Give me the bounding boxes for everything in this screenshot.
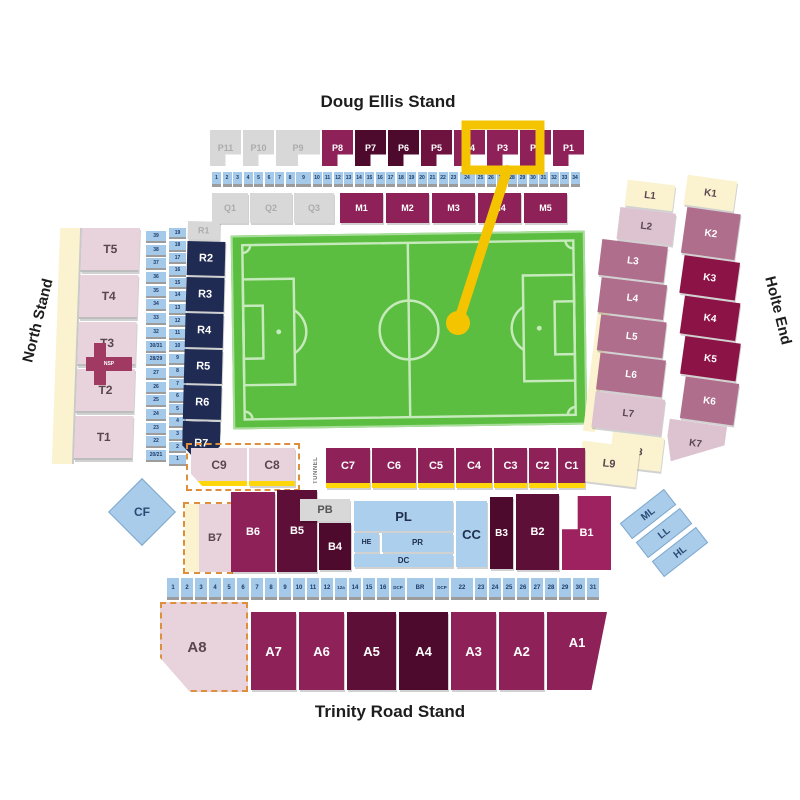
seat-section[interactable]: P4 <box>454 130 485 166</box>
seat-section[interactable]: K1 <box>684 175 738 212</box>
row-number-block[interactable]: 30 <box>529 172 538 187</box>
seat-section[interactable]: K3 <box>679 255 740 300</box>
seat-section[interactable]: A7 <box>251 612 296 690</box>
row-number-block[interactable]: 33 <box>560 172 569 187</box>
row-number-block[interactable]: 16 <box>169 266 186 277</box>
row-number-block[interactable]: 1 <box>167 578 179 600</box>
row-number-block[interactable]: 20 <box>418 172 427 187</box>
seat-section[interactable]: K6 <box>680 376 739 425</box>
row-number-block[interactable]: 12 <box>169 316 186 327</box>
seat-section[interactable]: P6 <box>388 130 419 166</box>
row-number-block[interactable]: 11 <box>169 329 186 340</box>
row-number-block[interactable]: 14 <box>349 578 361 600</box>
seat-section[interactable]: C1 <box>558 448 585 488</box>
row-number-block[interactable]: 4 <box>209 578 221 600</box>
stadium-seat-map: Doug Ellis Stand P11P10P9P8P7P6P5P4P3P2P… <box>0 0 800 800</box>
row-number-block[interactable]: 30/31 <box>146 341 166 353</box>
c8-c9-hospitality-group: C9C8 <box>186 443 300 491</box>
trinity-road-stand-title: Trinity Road Stand <box>295 702 485 722</box>
row-number-block[interactable]: 24 <box>460 172 475 187</box>
row-number-block[interactable]: 27 <box>146 368 166 380</box>
row-number-block[interactable]: 34 <box>146 299 166 311</box>
row-number-block[interactable]: 32 <box>550 172 559 187</box>
seat-section[interactable]: A5 <box>347 612 396 690</box>
seat-section-he[interactable]: HE <box>354 533 379 552</box>
row-number-block[interactable]: 5 <box>254 172 263 187</box>
seat-section[interactable]: C8 <box>249 448 295 486</box>
row-number-block[interactable]: 5 <box>223 578 235 600</box>
row-number-block[interactable]: 15 <box>365 172 374 187</box>
seat-section[interactable]: T4 <box>79 275 139 319</box>
seat-section[interactable]: C2 <box>529 448 556 488</box>
football-pitch <box>231 231 588 430</box>
row-number-block[interactable]: DCP <box>435 578 449 600</box>
seat-section[interactable]: P11 <box>210 130 241 166</box>
row-number-block[interactable]: 15 <box>363 578 375 600</box>
seat-section[interactable]: T5 <box>81 228 141 272</box>
seat-section[interactable]: P10 <box>243 130 274 166</box>
row-number-block[interactable]: 39 <box>146 231 166 243</box>
row-number-block[interactable]: 17 <box>169 253 186 264</box>
row-number-block[interactable]: 23 <box>449 172 458 187</box>
row-number-block[interactable]: 32 <box>146 327 166 339</box>
seat-section[interactable]: P3 <box>487 130 518 166</box>
seat-section[interactable]: K4 <box>680 296 741 341</box>
seat-section-pb[interactable]: PB <box>300 499 350 521</box>
r-sections-column: R1R2R3R4R5R6R7 <box>182 221 226 466</box>
row-number-block[interactable]: 34 <box>571 172 580 187</box>
row-number-block[interactable]: 9 <box>279 578 291 600</box>
seat-section[interactable]: P2 <box>520 130 551 166</box>
c-sections-row: C7C6C5C4C3C2C1 <box>326 448 585 488</box>
row-number-block[interactable]: 8 <box>265 578 277 600</box>
seat-section[interactable]: C5 <box>418 448 454 488</box>
row-number-block[interactable]: 37 <box>146 258 166 270</box>
row-number-block[interactable]: 10 <box>293 578 305 600</box>
m-sections-row: M1M2M3M4M5 <box>340 193 567 223</box>
seat-section[interactable]: A1 <box>547 612 607 690</box>
seat-section-b1[interactable]: B1 <box>562 496 611 570</box>
seat-section-a8[interactable]: A8 <box>160 602 248 692</box>
seat-section[interactable]: M1 <box>340 193 383 223</box>
row-number-block[interactable]: 26 <box>517 578 529 600</box>
seat-section-pl[interactable]: PL <box>354 501 453 531</box>
seat-section[interactable]: Q3 <box>294 193 334 223</box>
seat-section[interactable]: A2 <box>499 612 544 690</box>
row-number-block[interactable]: 36 <box>146 272 166 284</box>
q-sections-row: Q1Q2Q3 <box>212 193 334 223</box>
row-number-block[interactable]: 14 <box>355 172 364 187</box>
seat-section[interactable]: R6 <box>183 385 222 420</box>
doug-ellis-stand-title: Doug Ellis Stand <box>268 92 508 112</box>
row-number-block[interactable]: 28 <box>508 172 517 187</box>
row-number-block[interactable]: 13 <box>169 304 186 315</box>
seat-section-dc[interactable]: DC <box>354 554 453 567</box>
seat-section[interactable]: P8 <box>322 130 353 166</box>
row-number-block[interactable]: 10 <box>169 341 186 352</box>
nsp-section[interactable]: NSP <box>86 343 132 385</box>
north-row-numbers-outer: 393837363534333230/3128/2927262524232220… <box>146 231 166 462</box>
row-number-block[interactable]: 3 <box>233 172 242 187</box>
row-number-block[interactable]: 29 <box>518 172 527 187</box>
row-number-block[interactable]: 10 <box>313 172 322 187</box>
row-number-block[interactable]: 6 <box>265 172 274 187</box>
seat-section[interactable]: M4 <box>478 193 521 223</box>
a-sections-row: A7A6A5A4A3A2A1 <box>251 612 607 690</box>
row-number-block[interactable]: 24 <box>489 578 501 600</box>
suite-sections: MLLLHL <box>618 498 748 588</box>
row-number-block[interactable]: 12 <box>321 578 333 600</box>
seat-section[interactable]: A6 <box>299 612 344 690</box>
cf-label: CF <box>134 505 150 519</box>
row-number-block[interactable]: 28 <box>545 578 557 600</box>
row-number-block[interactable]: 22 <box>451 578 473 600</box>
row-number-block[interactable]: 27 <box>531 578 543 600</box>
seat-section[interactable]: C7 <box>326 448 370 488</box>
seat-section[interactable]: C3 <box>494 448 527 488</box>
nsp-label: NSP <box>86 357 132 371</box>
row-number-block[interactable]: 6 <box>237 578 249 600</box>
row-number-block[interactable]: BR <box>407 578 433 600</box>
row-number-block[interactable]: 25 <box>146 395 166 407</box>
seat-section[interactable]: C4 <box>456 448 492 488</box>
seat-section-cf[interactable]: CF <box>108 478 176 546</box>
seat-section[interactable]: P7 <box>355 130 386 166</box>
tunnel-label: TUNNEL <box>313 447 325 493</box>
row-number-block[interactable]: 11 <box>323 172 332 187</box>
row-number-block[interactable]: 7 <box>251 578 263 600</box>
row-number-block[interactable]: 18 <box>397 172 406 187</box>
row-number-block[interactable]: 12a <box>335 578 347 600</box>
seat-section[interactable]: C9 <box>191 448 247 486</box>
row-number-block[interactable]: 35 <box>146 286 166 298</box>
row-number-block[interactable]: 23 <box>146 423 166 435</box>
seat-section-cc[interactable]: CC <box>456 501 487 567</box>
row-number-block[interactable]: 8 <box>286 172 295 187</box>
row-number-block[interactable]: 33 <box>146 313 166 325</box>
row-number-block[interactable]: 7 <box>275 172 284 187</box>
row-number-block[interactable]: 24 <box>146 409 166 421</box>
row-number-block[interactable]: 20/21 <box>146 450 166 462</box>
row-number-block[interactable]: 3 <box>195 578 207 600</box>
seat-section[interactable]: T1 <box>74 416 134 460</box>
seat-section[interactable]: K7 <box>664 419 727 469</box>
row-number-block[interactable]: 16 <box>377 578 389 600</box>
row-number-block[interactable]: 14 <box>169 291 186 302</box>
row-number-block[interactable]: 30 <box>573 578 585 600</box>
row-number-block[interactable]: 25 <box>476 172 485 187</box>
seat-section[interactable]: Q1 <box>212 193 248 223</box>
row-number-block[interactable]: 38 <box>146 245 166 257</box>
seat-section[interactable]: M5 <box>524 193 567 223</box>
row-number-block[interactable]: 1 <box>212 172 221 187</box>
row-number-block[interactable]: DCP <box>391 578 405 600</box>
seat-section[interactable]: Q2 <box>250 193 292 223</box>
seat-section[interactable]: P9 <box>276 130 320 166</box>
row-number-block[interactable]: 2 <box>181 578 193 600</box>
seat-section-b2[interactable]: B2 <box>516 494 559 570</box>
pitch-markings <box>233 233 586 428</box>
b7-label: B7 <box>199 504 231 572</box>
seat-section-b7[interactable]: B7 <box>183 502 233 574</box>
row-number-block[interactable]: 19 <box>169 228 186 239</box>
row-number-block[interactable]: 22 <box>146 436 166 448</box>
seat-section[interactable]: K5 <box>680 336 741 381</box>
row-number-block[interactable]: 26 <box>487 172 496 187</box>
row-number-block[interactable]: 28/29 <box>146 354 166 366</box>
b7-concourse-strip <box>185 504 199 572</box>
row-number-block[interactable]: 2 <box>223 172 232 187</box>
seat-section[interactable]: R1 <box>188 221 220 240</box>
row-number-block[interactable]: 19 <box>407 172 416 187</box>
seat-section-b4[interactable]: B4 <box>319 523 351 570</box>
row-number-block[interactable]: 26 <box>146 382 166 394</box>
seat-section[interactable]: A3 <box>451 612 496 690</box>
seat-section[interactable]: K2 <box>681 207 741 260</box>
seat-section[interactable]: C6 <box>372 448 416 488</box>
row-number-block[interactable]: 15 <box>169 278 186 289</box>
row-number-block[interactable]: 4 <box>244 172 253 187</box>
trinity-row-numbers: 12345678910111212a141516DCPBRDCP22232425… <box>167 578 599 600</box>
holte-end-title: Holte End <box>754 244 800 376</box>
seat-section-pr[interactable]: PR <box>382 533 453 552</box>
row-number-block[interactable]: 21 <box>428 172 437 187</box>
row-number-block[interactable]: 25 <box>503 578 515 600</box>
row-number-block[interactable]: 16 <box>376 172 385 187</box>
seat-section[interactable]: M3 <box>432 193 475 223</box>
row-number-block[interactable]: 9 <box>296 172 311 187</box>
seat-section[interactable]: M2 <box>386 193 429 223</box>
seat-section[interactable]: P5 <box>421 130 452 166</box>
row-number-block[interactable]: 29 <box>559 578 571 600</box>
seat-section[interactable]: R3 <box>186 277 225 312</box>
row-number-block[interactable]: 27 <box>497 172 506 187</box>
row-number-block[interactable]: 18 <box>169 241 186 252</box>
seat-section[interactable]: R4 <box>185 313 224 348</box>
seat-section[interactable]: R5 <box>184 349 223 384</box>
row-number-block[interactable]: 31 <box>539 172 548 187</box>
row-number-block[interactable]: 23 <box>475 578 487 600</box>
p-sections-row: P11P10P9P8P7P6P5P4P3P2P1 <box>210 130 584 166</box>
row-number-block[interactable]: 12 <box>334 172 343 187</box>
seat-section-b6[interactable]: B6 <box>231 492 275 572</box>
seat-section-b3[interactable]: B3 <box>490 497 513 569</box>
row-number-block[interactable]: 13 <box>344 172 353 187</box>
doug-ellis-row-numbers: 1234567891011121314151617181920212223242… <box>212 172 580 187</box>
row-number-block[interactable]: 17 <box>386 172 395 187</box>
row-number-block[interactable]: 31 <box>587 578 599 600</box>
row-number-block[interactable]: 11 <box>307 578 319 600</box>
row-number-block[interactable]: 22 <box>439 172 448 187</box>
seat-section[interactable]: A4 <box>399 612 448 690</box>
seat-section[interactable]: R2 <box>187 241 226 276</box>
seat-section[interactable]: P1 <box>553 130 584 166</box>
